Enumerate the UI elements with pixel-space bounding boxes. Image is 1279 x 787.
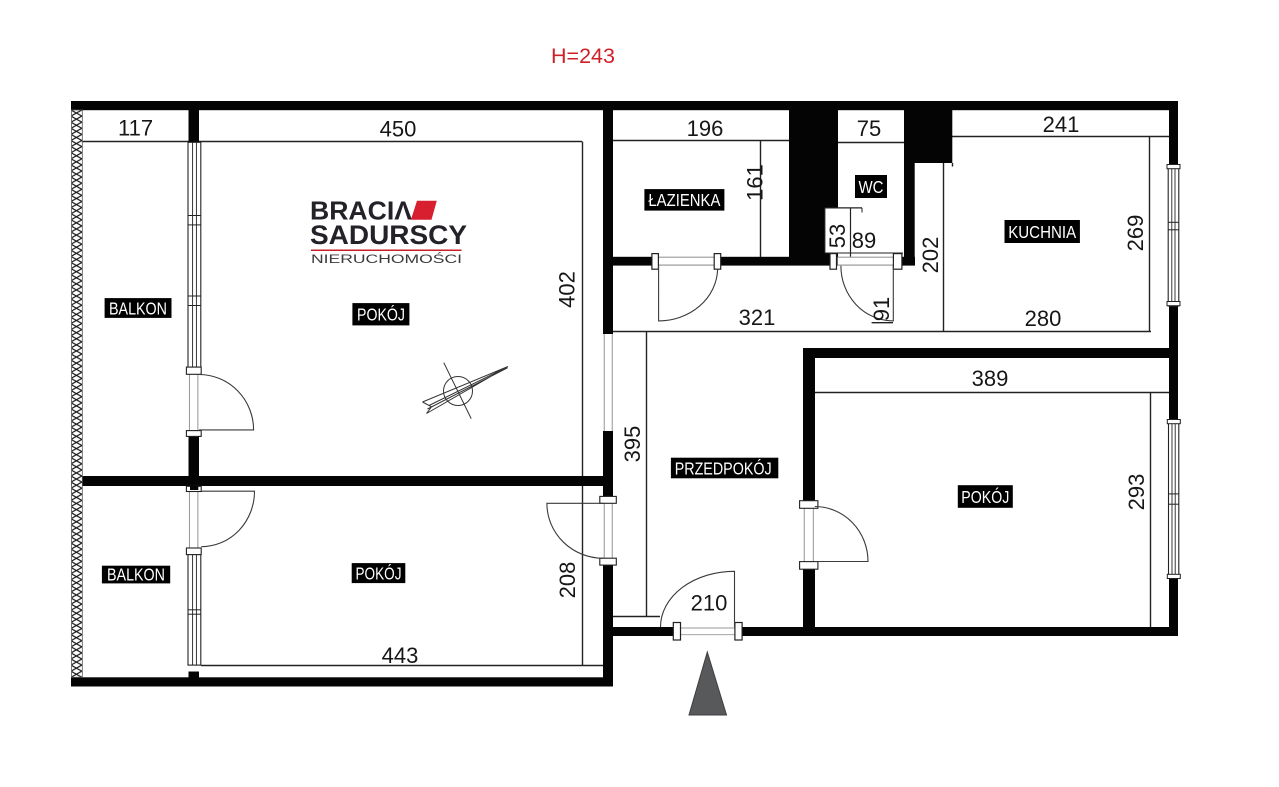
svg-text:75: 75 (857, 116, 881, 141)
svg-text:202: 202 (918, 237, 943, 274)
svg-text:91: 91 (869, 297, 894, 321)
svg-text:269: 269 (1123, 215, 1148, 252)
svg-text:89: 89 (852, 228, 876, 253)
svg-text:395: 395 (620, 426, 645, 463)
svg-text:POKÓJ: POKÓJ (961, 486, 1009, 507)
svg-text:WC: WC (859, 177, 884, 197)
svg-text:450: 450 (380, 117, 417, 142)
svg-text:161: 161 (743, 164, 768, 201)
svg-text:389: 389 (972, 366, 1009, 391)
svg-text:321: 321 (739, 305, 776, 330)
svg-text:280: 280 (1025, 306, 1062, 331)
svg-text:53: 53 (825, 224, 850, 248)
svg-text:POKÓJ: POKÓJ (357, 304, 405, 325)
svg-text:ŁAZIENKA: ŁAZIENKA (648, 190, 720, 210)
svg-text:443: 443 (382, 643, 419, 668)
svg-text:NIERUCHOMOŚCI: NIERUCHOMOŚCI (311, 253, 462, 266)
svg-text:196: 196 (687, 116, 724, 141)
svg-text:117: 117 (118, 116, 153, 141)
svg-text:293: 293 (1124, 474, 1149, 511)
svg-text:208: 208 (555, 562, 580, 599)
svg-text:210: 210 (691, 591, 728, 616)
svg-text:POKÓJ: POKÓJ (356, 562, 402, 583)
svg-text:BALKON: BALKON (109, 298, 167, 318)
svg-text:402: 402 (555, 271, 580, 308)
svg-text:241: 241 (1043, 112, 1080, 137)
svg-text:SADURSCY: SADURSCY (310, 220, 467, 250)
svg-text:PRZEDPOKÓJ: PRZEDPOKÓJ (675, 457, 772, 478)
svg-text:KUCHNIA: KUCHNIA (1008, 222, 1076, 242)
svg-text:BALKON: BALKON (107, 565, 165, 585)
svg-text:H=243: H=243 (551, 44, 615, 68)
